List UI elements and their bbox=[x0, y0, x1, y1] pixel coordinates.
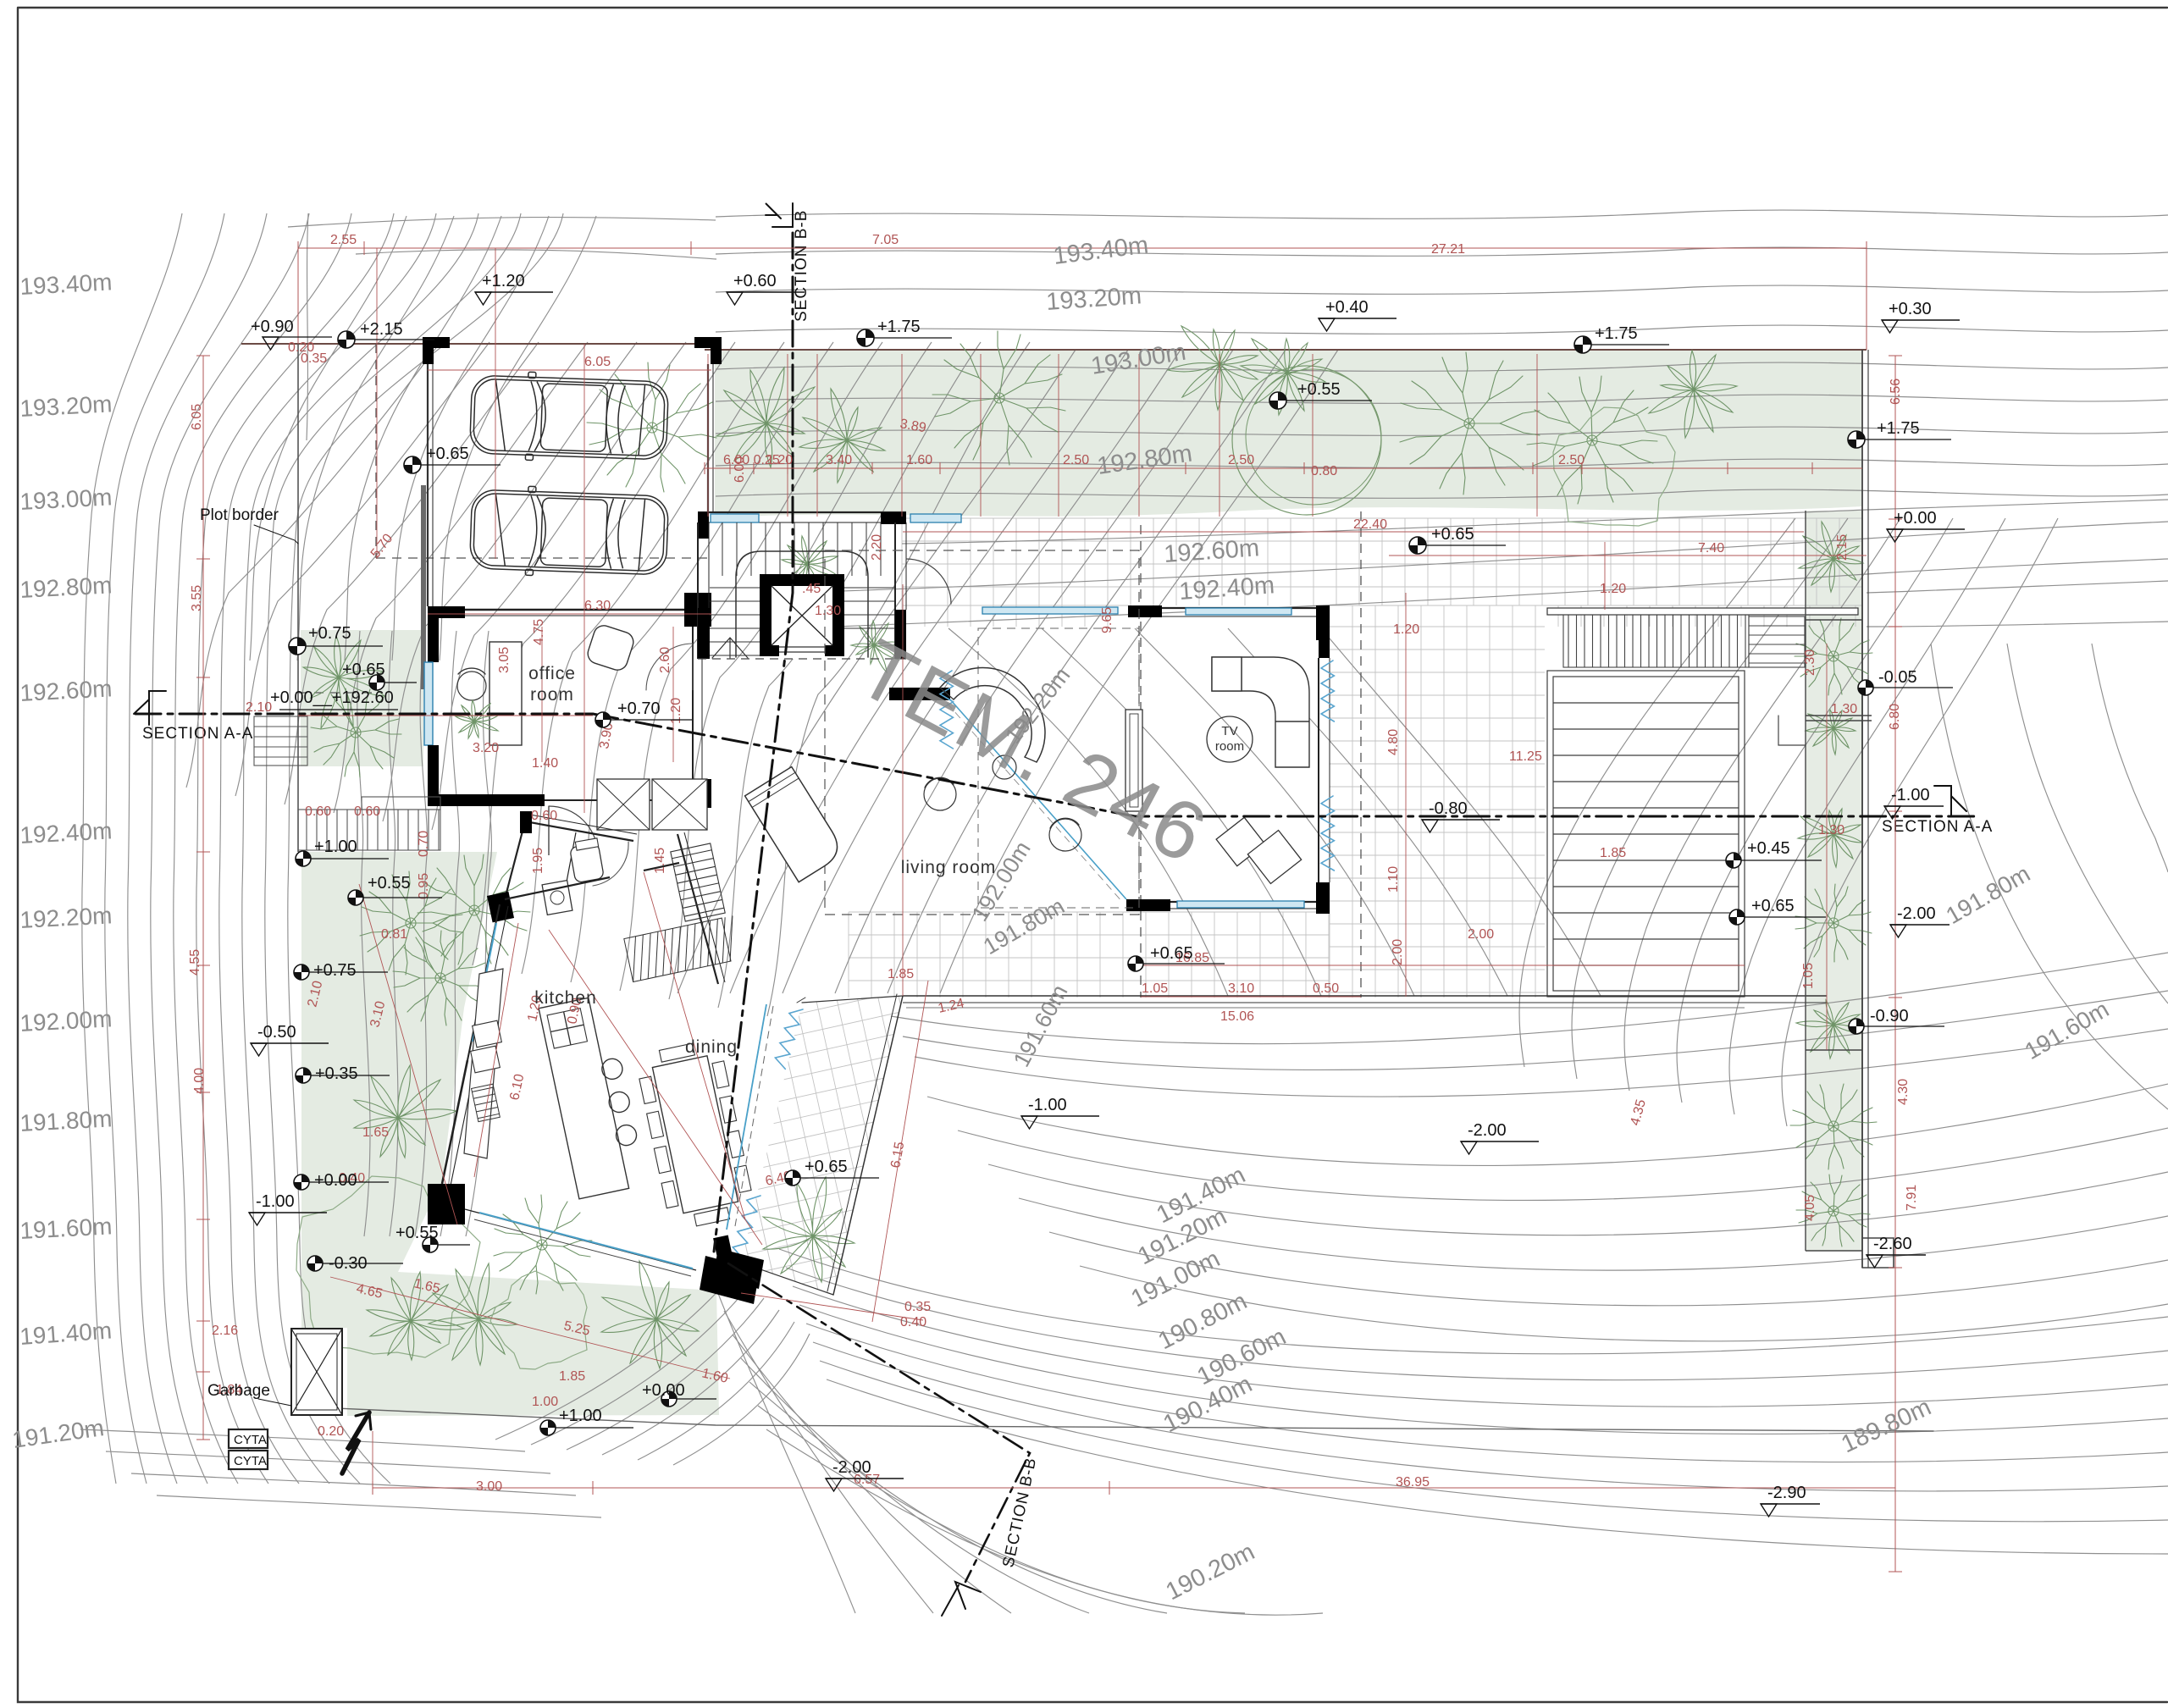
svg-text:192.20m: 192.20m bbox=[19, 902, 113, 933]
svg-text:2.50: 2.50 bbox=[1558, 453, 1585, 467]
svg-text:0.40: 0.40 bbox=[900, 1315, 926, 1329]
svg-text:7.40: 7.40 bbox=[1698, 541, 1724, 556]
svg-text:office: office bbox=[528, 664, 576, 683]
svg-text:3.00: 3.00 bbox=[476, 1479, 502, 1494]
svg-text:+0.65: +0.65 bbox=[426, 445, 469, 463]
svg-text:+0.35: +0.35 bbox=[315, 1064, 358, 1083]
svg-text:1.00: 1.00 bbox=[532, 1395, 558, 1409]
svg-text:4.80: 4.80 bbox=[1386, 729, 1401, 755]
svg-text:1.20: 1.20 bbox=[1600, 582, 1626, 596]
svg-text:15.06: 15.06 bbox=[1220, 1009, 1254, 1024]
svg-text:-0.05: -0.05 bbox=[1878, 668, 1917, 687]
svg-text:+1.75: +1.75 bbox=[1877, 419, 1920, 438]
svg-text:-2.90: -2.90 bbox=[1767, 1484, 1806, 1502]
svg-text:192.00m: 192.00m bbox=[19, 1005, 113, 1036]
svg-text:+0.65: +0.65 bbox=[342, 661, 385, 679]
svg-text:+0.65: +0.65 bbox=[805, 1158, 848, 1176]
svg-text:6.56: 6.56 bbox=[1889, 379, 1903, 405]
svg-text:+0.70: +0.70 bbox=[617, 699, 661, 718]
svg-text:Garbage: Garbage bbox=[207, 1382, 270, 1400]
svg-text:+0.55: +0.55 bbox=[368, 874, 411, 893]
svg-text:0.70: 0.70 bbox=[417, 831, 431, 857]
svg-text:22.40: 22.40 bbox=[1353, 517, 1387, 532]
svg-text:SECTION B-B: SECTION B-B bbox=[793, 210, 810, 322]
svg-text:191.80m: 191.80m bbox=[19, 1105, 113, 1136]
svg-text:CYTA: CYTA bbox=[234, 1454, 267, 1468]
svg-text:-1.00: -1.00 bbox=[1028, 1096, 1067, 1114]
svg-text:-2.00: -2.00 bbox=[832, 1458, 871, 1477]
svg-text:room: room bbox=[1215, 739, 1244, 754]
svg-text:living room: living room bbox=[901, 858, 997, 877]
svg-text:-0.80: -0.80 bbox=[1429, 799, 1468, 818]
svg-text:2.00: 2.00 bbox=[1391, 939, 1405, 965]
svg-text:+0.00: +0.00 bbox=[642, 1381, 685, 1400]
svg-text:-2.60: -2.60 bbox=[1873, 1235, 1912, 1253]
svg-text:+0.30: +0.30 bbox=[1889, 300, 1932, 318]
svg-text:+0.00__+192.60: +0.00__+192.60 bbox=[270, 688, 394, 707]
svg-text:192.60m: 192.60m bbox=[19, 675, 113, 706]
svg-text:192.40m: 192.40m bbox=[19, 817, 113, 848]
svg-text:-0.50: -0.50 bbox=[257, 1023, 296, 1042]
svg-text:1.40: 1.40 bbox=[532, 756, 558, 771]
svg-text:+2.15: +2.15 bbox=[360, 320, 403, 339]
svg-text:0.20: 0.20 bbox=[318, 1424, 344, 1439]
svg-text:7.05: 7.05 bbox=[872, 233, 899, 247]
svg-text:+0.90: +0.90 bbox=[251, 318, 294, 336]
svg-text:0.35: 0.35 bbox=[301, 351, 327, 366]
svg-text:1.05: 1.05 bbox=[1801, 963, 1816, 989]
svg-text:1.20: 1.20 bbox=[1393, 622, 1419, 637]
svg-text:-1.00: -1.00 bbox=[256, 1192, 295, 1211]
svg-text:2.10: 2.10 bbox=[246, 700, 272, 715]
svg-text:2.50: 2.50 bbox=[1228, 453, 1254, 467]
svg-text:+0.75: +0.75 bbox=[308, 624, 351, 643]
svg-text:6.00: 6.00 bbox=[733, 456, 747, 483]
svg-text:-2.00: -2.00 bbox=[1897, 904, 1936, 923]
svg-text:3.20: 3.20 bbox=[473, 741, 499, 755]
svg-text:+1.20: +1.20 bbox=[482, 272, 525, 290]
svg-text:3.40: 3.40 bbox=[826, 453, 852, 467]
svg-text:2.50: 2.50 bbox=[1063, 453, 1089, 467]
svg-text:+0.55: +0.55 bbox=[1297, 380, 1341, 399]
svg-text:1.20: 1.20 bbox=[766, 453, 793, 467]
svg-text:0.60: 0.60 bbox=[305, 804, 331, 819]
svg-text:dining: dining bbox=[685, 1037, 738, 1057]
svg-text:1.30: 1.30 bbox=[815, 604, 841, 618]
svg-text:2.60: 2.60 bbox=[658, 647, 672, 673]
svg-text:SECTION A-A: SECTION A-A bbox=[142, 725, 253, 743]
svg-text:+0.55: +0.55 bbox=[395, 1224, 439, 1242]
svg-text:.45: .45 bbox=[802, 582, 821, 596]
svg-text:0.50: 0.50 bbox=[1313, 981, 1339, 996]
svg-text:TV: TV bbox=[1221, 724, 1237, 738]
svg-text:193.40m: 193.40m bbox=[19, 268, 113, 300]
svg-text:+0.75: +0.75 bbox=[313, 961, 357, 980]
svg-text:6.80: 6.80 bbox=[1888, 704, 1902, 730]
svg-text:-1.00: -1.00 bbox=[1891, 786, 1930, 804]
svg-text:SECTION A-A: SECTION A-A bbox=[1882, 818, 1993, 836]
svg-text:27.21: 27.21 bbox=[1431, 242, 1465, 257]
svg-text:-0.90: -0.90 bbox=[1870, 1007, 1909, 1025]
svg-text:0.81: 0.81 bbox=[381, 927, 407, 942]
svg-text:1.85: 1.85 bbox=[559, 1369, 585, 1384]
svg-text:2.20: 2.20 bbox=[870, 534, 884, 561]
svg-text:+0.45: +0.45 bbox=[1747, 839, 1790, 858]
svg-text:1.30: 1.30 bbox=[1818, 823, 1844, 837]
svg-text:193.00m: 193.00m bbox=[19, 484, 113, 515]
svg-text:2.30: 2.30 bbox=[1803, 649, 1817, 676]
svg-text:2.16: 2.16 bbox=[212, 1324, 238, 1338]
svg-text:3.10: 3.10 bbox=[1228, 981, 1254, 996]
svg-text:6.30: 6.30 bbox=[584, 599, 611, 613]
svg-text:2.15: 2.15 bbox=[1835, 534, 1850, 561]
svg-text:+0.40: +0.40 bbox=[1325, 298, 1369, 317]
svg-text:2.55: 2.55 bbox=[330, 233, 357, 247]
svg-text:2.00: 2.00 bbox=[1468, 927, 1494, 942]
svg-text:193.20m: 193.20m bbox=[19, 390, 113, 422]
svg-text:0.95: 0.95 bbox=[417, 873, 431, 899]
svg-text:0.60: 0.60 bbox=[354, 804, 380, 819]
svg-text:+1.75: +1.75 bbox=[877, 318, 921, 336]
svg-text:3.55: 3.55 bbox=[190, 585, 204, 611]
svg-text:-2.00: -2.00 bbox=[1468, 1121, 1507, 1140]
svg-text:192.80m: 192.80m bbox=[19, 572, 113, 603]
svg-text:-0.30: -0.30 bbox=[329, 1254, 368, 1273]
svg-text:1.60: 1.60 bbox=[906, 453, 932, 467]
svg-text:1.95: 1.95 bbox=[531, 848, 545, 874]
svg-text:191.60m: 191.60m bbox=[19, 1213, 113, 1244]
svg-text:4.00: 4.00 bbox=[192, 1068, 207, 1094]
svg-text:6.05: 6.05 bbox=[190, 404, 204, 430]
svg-text:4.75: 4.75 bbox=[532, 619, 546, 645]
svg-text:6.05: 6.05 bbox=[584, 355, 611, 369]
svg-text:4.55: 4.55 bbox=[188, 949, 202, 976]
svg-text:+1.00: +1.00 bbox=[559, 1407, 602, 1425]
svg-text:Plot border: Plot border bbox=[200, 506, 279, 524]
svg-text:1.85: 1.85 bbox=[888, 967, 914, 981]
svg-text:4.05: 4.05 bbox=[1803, 1195, 1817, 1221]
svg-text:+0.65: +0.65 bbox=[1751, 897, 1795, 915]
svg-text:36.95: 36.95 bbox=[1396, 1475, 1430, 1490]
svg-text:1.85: 1.85 bbox=[1600, 846, 1626, 860]
svg-text:9.65: 9.65 bbox=[1100, 607, 1114, 633]
svg-text:+0.65: +0.65 bbox=[1431, 525, 1474, 544]
svg-text:0.80: 0.80 bbox=[1311, 464, 1337, 478]
svg-text:3.05: 3.05 bbox=[497, 647, 512, 673]
svg-text:1.45: 1.45 bbox=[653, 848, 667, 874]
svg-text:11.25: 11.25 bbox=[1509, 749, 1542, 764]
svg-text:room: room bbox=[530, 685, 574, 705]
svg-text:1.30: 1.30 bbox=[1831, 702, 1857, 716]
svg-text:1.10: 1.10 bbox=[1386, 866, 1401, 893]
svg-text:+1.75: +1.75 bbox=[1595, 324, 1638, 343]
svg-text:+0.00: +0.00 bbox=[314, 1171, 357, 1190]
svg-text:+0.00: +0.00 bbox=[1894, 509, 1937, 528]
svg-text:+0.65: +0.65 bbox=[1150, 944, 1193, 963]
svg-text:4.30: 4.30 bbox=[1896, 1079, 1911, 1105]
svg-text:1.65: 1.65 bbox=[362, 1125, 389, 1140]
svg-text:0.60: 0.60 bbox=[531, 809, 557, 823]
svg-text:+1.00: +1.00 bbox=[314, 837, 357, 856]
svg-text:+0.60: +0.60 bbox=[733, 272, 777, 290]
svg-text:kitchen: kitchen bbox=[534, 988, 597, 1008]
svg-text:CYTA: CYTA bbox=[234, 1433, 267, 1447]
svg-text:1.05: 1.05 bbox=[1142, 981, 1168, 996]
svg-text:0.35: 0.35 bbox=[904, 1300, 931, 1314]
svg-text:7.91: 7.91 bbox=[1905, 1185, 1919, 1211]
